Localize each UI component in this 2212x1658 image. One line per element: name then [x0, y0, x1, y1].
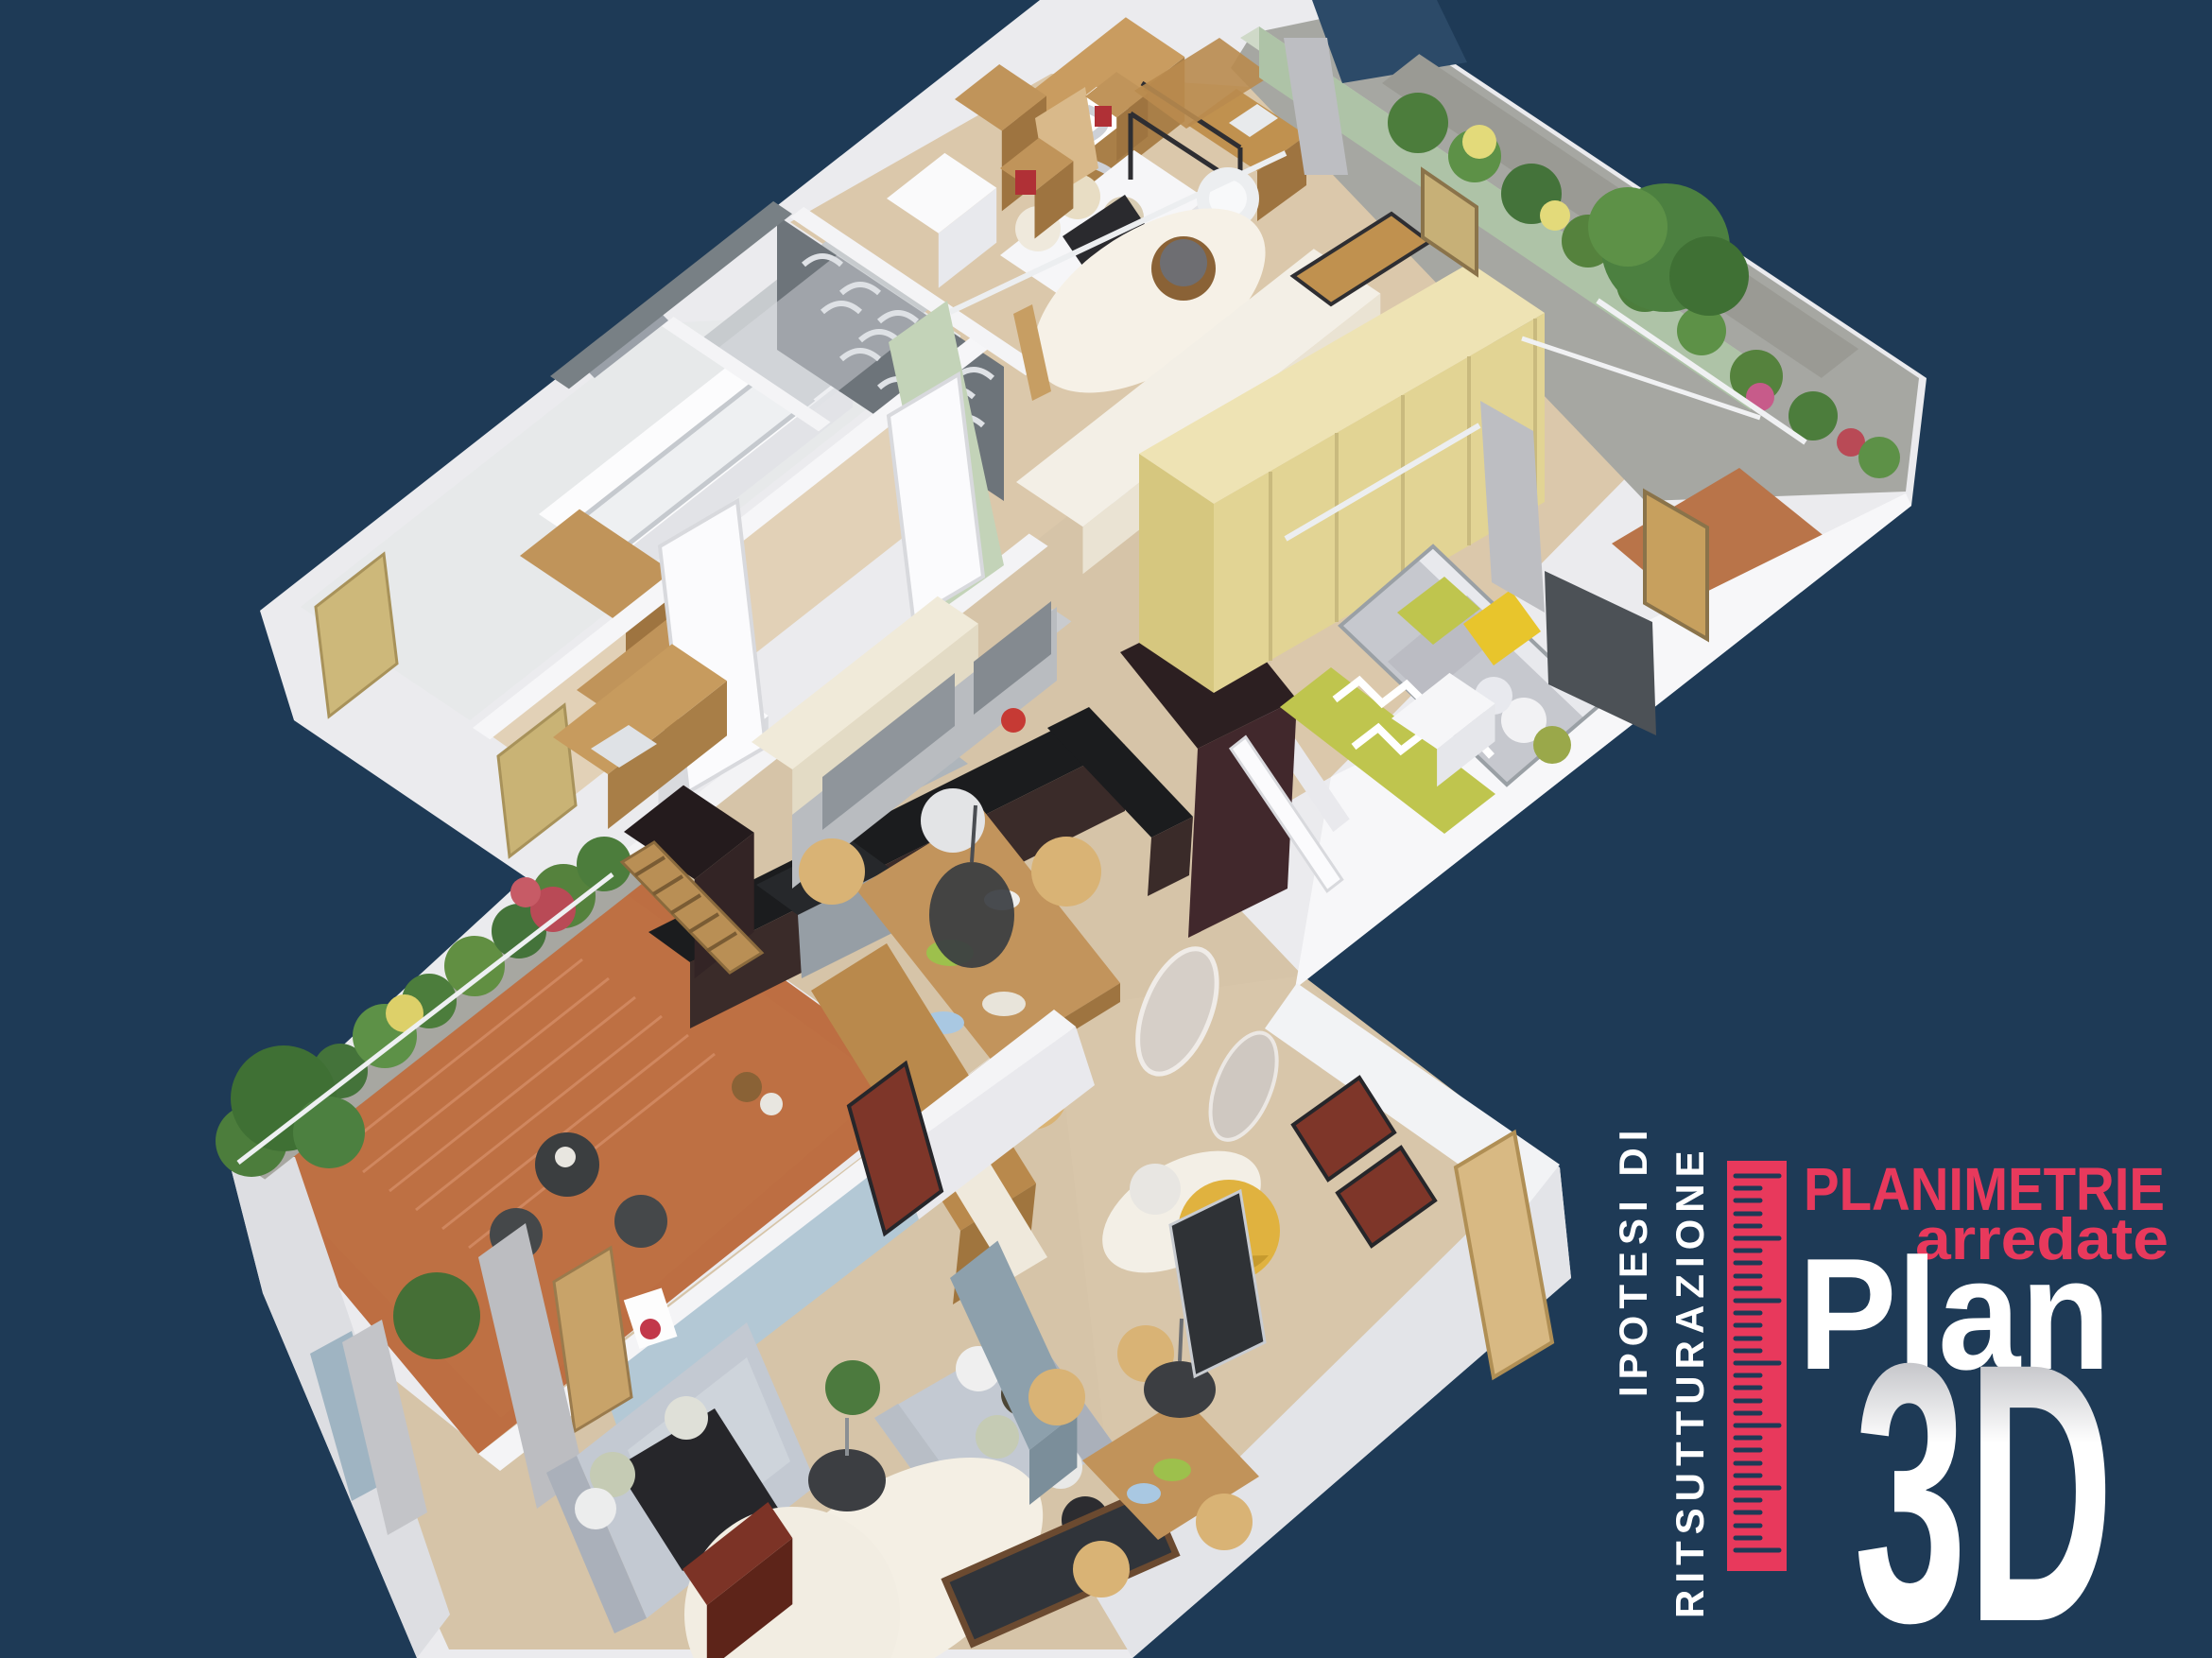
svg-text:IPOTESI DI: IPOTESI DI: [1611, 1124, 1655, 1397]
svg-text:3D: 3D: [1854, 1287, 2114, 1658]
svg-text:RITSUTTURAZIONE: RITSUTTURAZIONE: [1668, 1144, 1712, 1618]
